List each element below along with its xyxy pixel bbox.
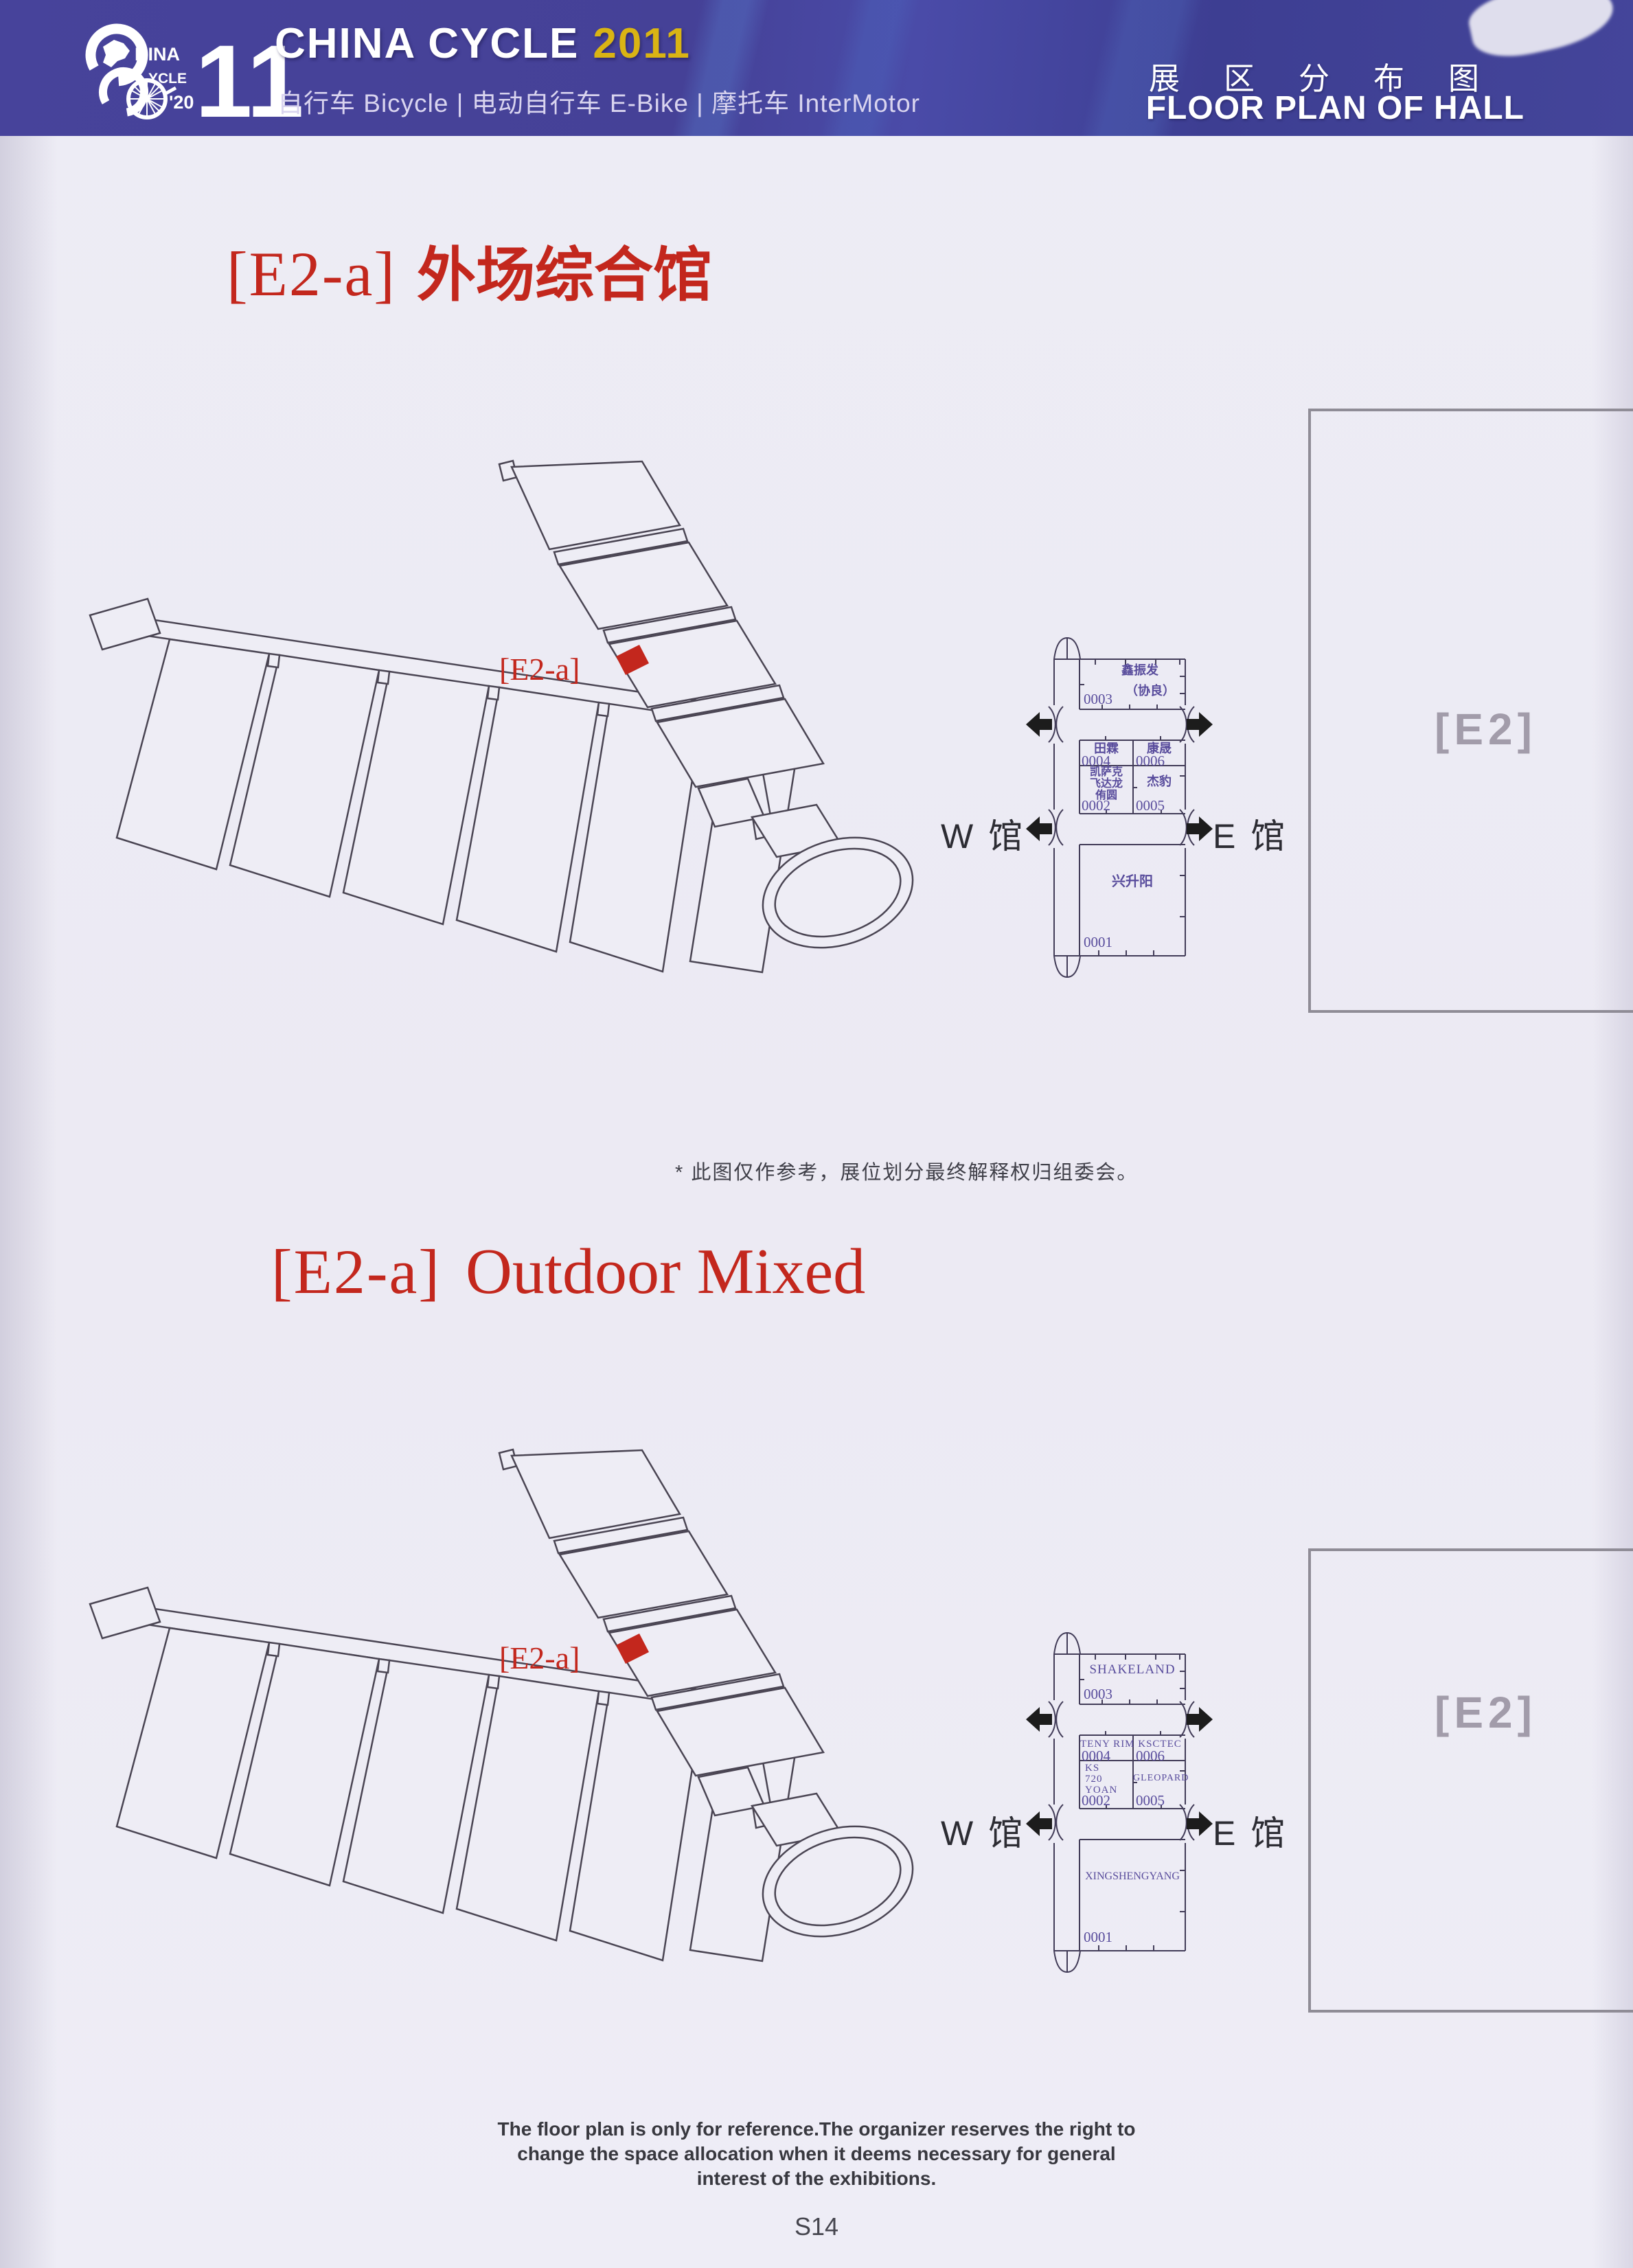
booth-number: 0004 [1082,1748,1110,1764]
booth-name: GLEOPARD [1133,1773,1187,1783]
logo-ycle-text: YCLE [148,71,187,87]
door-swing-bottom-icon [1054,1951,1080,1972]
disclaimer-text: The floor plan is only for reference.The… [439,2117,1194,2191]
logo-hina-text: HINA [135,44,180,65]
west-arrow-upper-icon [1026,712,1052,737]
hall-e2a-minimap-1: 鑫振发 （协良） 0003 田霖 0004 康晟 0006 凯萨克 飞达龙 侑圆… [1016,628,1222,982]
booth-number: 0002 [1082,1793,1110,1809]
booth-number: 0003 [1084,1686,1112,1702]
disclaimer-line2: change the space allocation when it deem… [439,2142,1194,2166]
page-number: S14 [439,2212,1194,2241]
brochure-page: HINA YCLE '20 11 CHINA CYCLE2011 自行车 Bic… [0,0,1633,2268]
booth-name: 720 [1085,1774,1103,1785]
annex-hall-shape [90,1588,160,1638]
booth-number: 0002 [1082,798,1110,814]
booth-name: SHAKELAND [1080,1663,1185,1677]
east-hall-label: E 馆 [1213,1806,1288,1855]
booth-number: 0003 [1084,691,1112,707]
booth-name: 飞达龙 [1080,778,1132,790]
booth-name: KS [1085,1763,1099,1774]
disclaimer-line1: The floor plan is only for reference.The… [439,2117,1194,2142]
section2-title: [E2-a]Outdoor Mixed [271,1235,865,1309]
east-hall-label: E 馆 [1213,809,1288,858]
booth-number: 0001 [1084,1929,1112,1945]
e2-hall-outline-2: [E2] [1308,1548,1633,2013]
door-swing-top-icon [1054,638,1080,659]
section1-code: [E2-a] [227,239,396,309]
booth-name: 凯萨克 [1080,766,1132,779]
hall-e2a-minimap-2: SHAKELAND 0003 TENY RIM 0004 KSCTEC 0006… [1016,1623,1222,1977]
section1-title: [E2-a]外场综合馆 [227,227,712,312]
door-swing-top-icon [1054,1633,1080,1654]
west-arrow-lower-icon [1026,816,1052,841]
e2a-marker-label: [E2-a] [499,652,580,687]
booth-number: 0006 [1136,1748,1165,1764]
e2a-marker-label: [E2-a] [499,1640,580,1675]
booth-name: 鑫振发 [1085,664,1195,678]
annex-hall-shape [90,599,160,650]
booth-number: 0006 [1136,753,1165,769]
booth-name: XINGSHENGYANG [1077,1870,1188,1883]
west-arrow-lower-icon [1026,1811,1052,1836]
west-hall-label: W 馆 [941,1806,1025,1855]
site-plan-diagram-2: [E2-a] [38,1442,937,1991]
door-swing-bottom-icon [1054,956,1080,977]
brand-subtitle: 自行车 Bicycle | 电动自行车 E-Bike | 摩托车 InterMo… [277,82,920,119]
header-title-en: FLOOR PLAN OF HALL [1146,89,1524,127]
west-arrow-upper-icon [1026,1707,1052,1732]
brand-name: CHINA CYCLE [275,20,579,67]
e2-hall-outline-1: [E2] [1308,409,1633,1013]
china-cycle-logo-icon: HINA YCLE '20 11 [60,12,308,128]
east-arrow-lower-icon [1187,1811,1213,1836]
east-arrow-lower-icon [1187,816,1213,841]
reference-note: * 此图仅作参考，展位划分最终解释权归组委会。 [675,1156,1138,1185]
e2-hall-label: [E2] [1435,1687,1537,1738]
page-header: HINA YCLE '20 11 CHINA CYCLE2011 自行车 Bic… [0,0,1633,136]
west-hall-label: W 馆 [941,809,1025,858]
section2-name: Outdoor Mixed [466,1236,865,1307]
booth-number: 0001 [1084,935,1112,950]
e2-hall-label: [E2] [1435,704,1537,755]
booth-name: 杰豹 [1134,775,1184,789]
booth-name: 兴升阳 [1080,874,1185,889]
east-arrow-upper-icon [1187,1707,1213,1732]
brand-year: 2011 [593,20,691,67]
east-arrow-upper-icon [1187,712,1213,737]
china-map-silhouette-icon [103,40,130,67]
logo-year-short: '20 [169,92,194,113]
section1-name: 外场综合馆 [417,242,712,308]
site-plan-diagram-1: [E2-a] [38,453,937,1003]
section2-code: [E2-a] [271,1237,441,1307]
booth-number: 0005 [1136,1793,1165,1809]
booth-name: （协良） [1099,685,1202,698]
brand-title: CHINA CYCLE2011 [275,19,691,68]
booth-number: 0005 [1136,798,1165,814]
disclaimer-line3: interest of the exhibitions. [439,2166,1194,2191]
